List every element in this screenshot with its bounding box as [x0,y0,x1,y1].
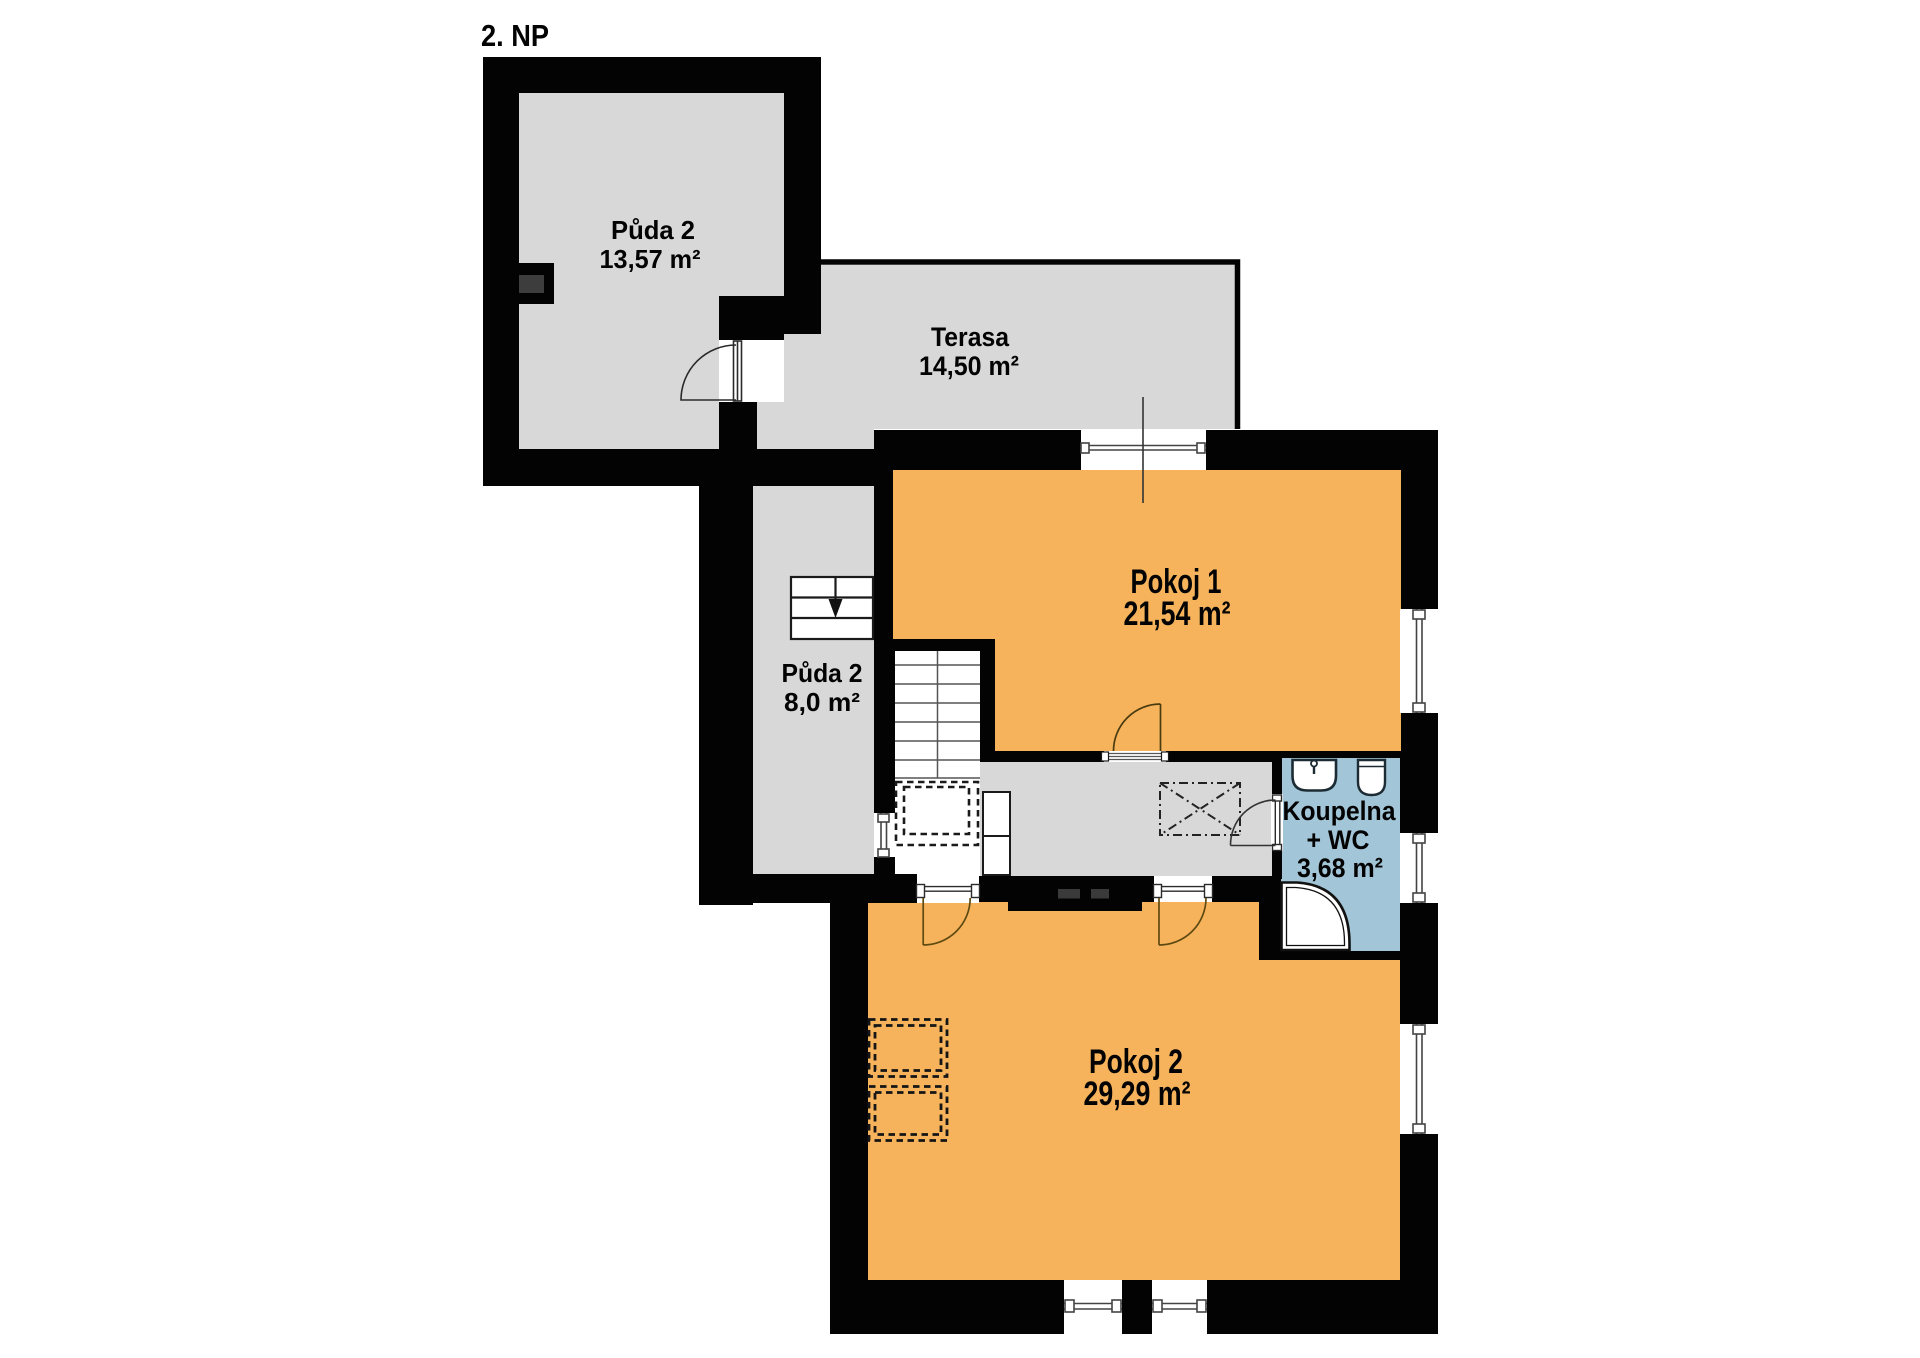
svg-text:+ WC: + WC [1307,825,1370,855]
svg-text:8,0 m²: 8,0 m² [784,687,860,717]
svg-text:Terasa: Terasa [931,322,1010,352]
svg-text:Půda 2: Půda 2 [782,658,863,688]
svg-text:21,54 m²: 21,54 m² [1124,595,1231,633]
svg-text:2. NP: 2. NP [481,18,549,53]
svg-text:3,68 m²: 3,68 m² [1297,853,1383,883]
svg-text:14,50 m²: 14,50 m² [919,351,1019,381]
svg-text:Půda 2: Půda 2 [611,215,695,245]
svg-text:Koupelna: Koupelna [1283,796,1397,826]
svg-text:13,57 m²: 13,57 m² [600,244,701,274]
svg-text:29,29 m²: 29,29 m² [1084,1075,1191,1113]
